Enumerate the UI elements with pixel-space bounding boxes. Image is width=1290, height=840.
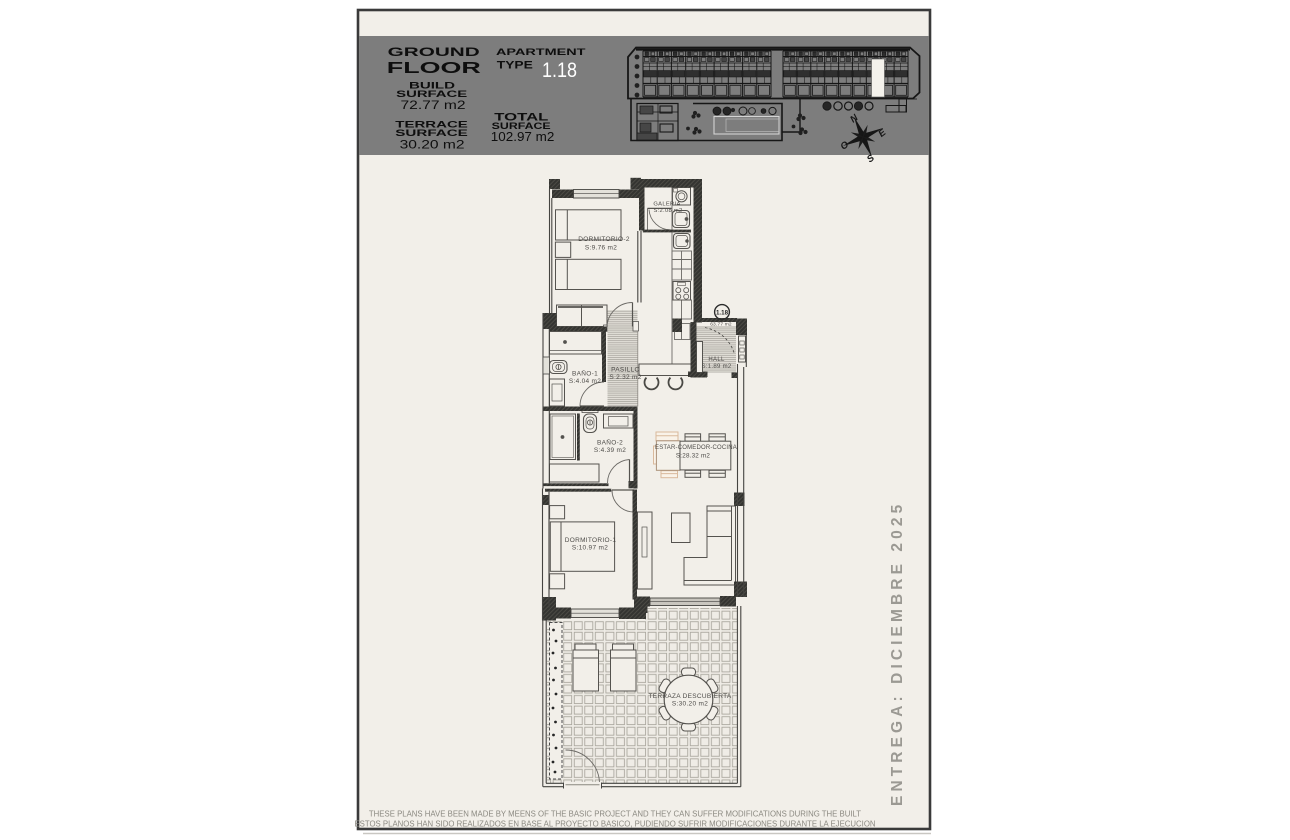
svg-text:HALL: HALL (708, 357, 725, 363)
svg-text:1.18: 1.18 (542, 58, 577, 82)
svg-text:ESTOS PLANOS HAN SIDO REALIZAD: ESTOS PLANOS HAN SIDO REALIZADOS EN BASE… (354, 820, 875, 829)
svg-text:S 2.32 m2: S 2.32 m2 (609, 374, 641, 381)
svg-text:S:10.97 m2: S:10.97 m2 (572, 544, 608, 551)
svg-text:63.77 m2: 63.77 m2 (710, 322, 732, 328)
svg-text:102.97 m2: 102.97 m2 (491, 129, 555, 144)
svg-text:S:2.08 m2: S:2.08 m2 (653, 208, 682, 214)
svg-text:72.77 m2: 72.77 m2 (401, 98, 466, 112)
svg-text:S:1.89 m2: S:1.89 m2 (701, 364, 731, 370)
svg-text:FLOOR: FLOOR (387, 60, 481, 77)
svg-text:S:4.04 m2: S:4.04 m2 (569, 378, 601, 385)
svg-text:APARTMENT: APARTMENT (496, 47, 586, 58)
svg-text:1.18: 1.18 (716, 309, 729, 316)
svg-text:BAÑO-1: BAÑO-1 (572, 369, 598, 378)
svg-text:TERRAZA DESCUBIERTA: TERRAZA DESCUBIERTA (648, 693, 731, 700)
svg-text:TYPE: TYPE (497, 60, 533, 72)
svg-text:PASILLO: PASILLO (611, 367, 640, 374)
svg-text:DORMITORIO-2: DORMITORIO-2 (578, 236, 630, 243)
svg-text:ESTAR-COMEDOR-COCINA: ESTAR-COMEDOR-COCINA (655, 444, 738, 451)
svg-text:GROUND: GROUND (388, 45, 481, 59)
svg-text:S:4.39 m2: S:4.39 m2 (594, 447, 626, 454)
svg-text:ENTREGA: DICIEMBRE 2025: ENTREGA: DICIEMBRE 2025 (889, 501, 906, 806)
svg-text:S:28.32 m2: S:28.32 m2 (676, 453, 711, 460)
svg-text:S:30.20 m2: S:30.20 m2 (672, 701, 708, 708)
svg-text:BAÑO-2: BAÑO-2 (597, 438, 623, 447)
svg-text:30.20 m2: 30.20 m2 (400, 137, 465, 151)
svg-text:THESE PLANS HAVE BEEN MADE BY: THESE PLANS HAVE BEEN MADE BY MEENS OF T… (369, 810, 861, 819)
svg-text:DORMITORIO-1: DORMITORIO-1 (565, 537, 617, 544)
svg-text:S:9.76 m2: S:9.76 m2 (585, 245, 617, 252)
svg-text:GALERIA: GALERIA (653, 202, 680, 208)
